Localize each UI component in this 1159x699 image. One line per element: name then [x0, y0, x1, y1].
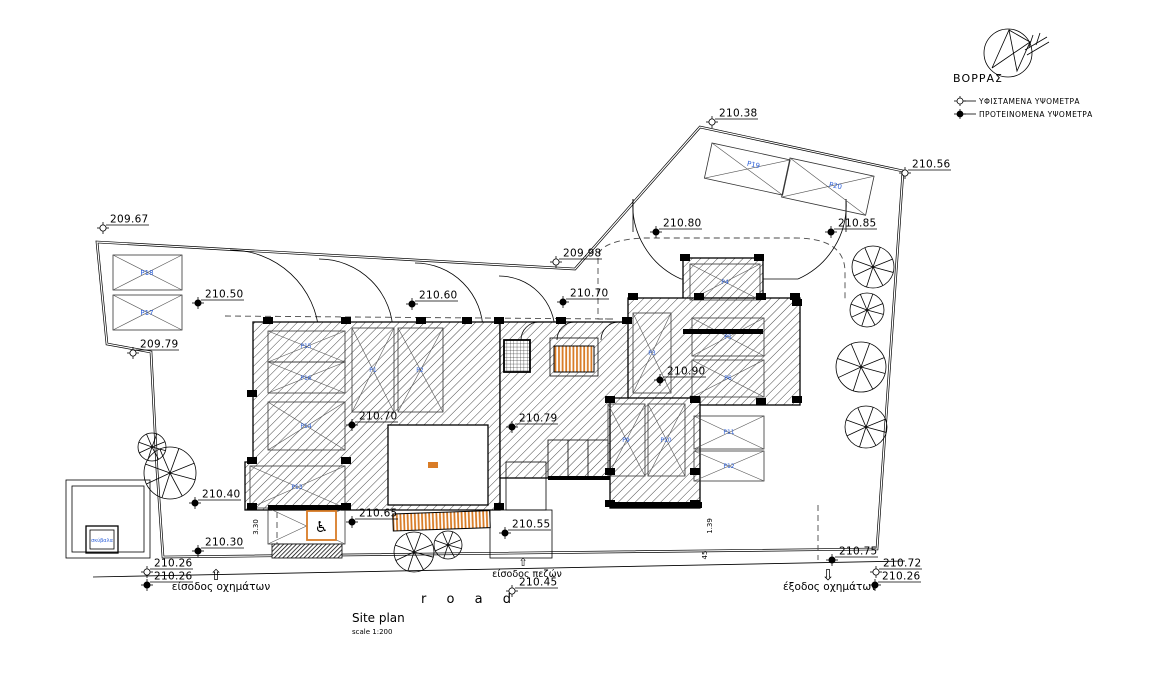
- column: [341, 457, 351, 464]
- parking-space-label: P17: [140, 309, 153, 317]
- column: [494, 317, 504, 324]
- tree-icon: [852, 246, 894, 288]
- dimension-label: 45: [701, 551, 709, 560]
- parking-space-label: P4: [721, 279, 729, 286]
- tree-icon: [845, 406, 887, 448]
- column: [756, 293, 766, 300]
- elevation-value: 210.60: [419, 290, 458, 302]
- elevation-marker: 210.85: [825, 218, 877, 239]
- tree-icon: [394, 532, 434, 572]
- elevation-marker: 210.40: [189, 489, 241, 510]
- proposed-elevation-icon: [829, 557, 835, 563]
- proposed-elevation-icon: [560, 299, 566, 305]
- existing-elevation-icon: [144, 569, 150, 575]
- elevation-value: 210.85: [838, 218, 877, 230]
- elevation-marker: 209.67: [97, 214, 149, 235]
- parking-space-label: P14: [300, 423, 311, 430]
- elevation-marker: 210.56: [899, 159, 951, 180]
- legend-proposed-symbol: [954, 109, 976, 119]
- waste-box-label: σκύβαλα: [91, 537, 113, 544]
- compass: ΒΟΡΡΑΣ: [953, 29, 1049, 85]
- column: [756, 398, 766, 405]
- elevation-marker: 210.55: [499, 519, 551, 540]
- elevation-marker: 210.60: [406, 290, 458, 311]
- proposed-elevation-icon: [349, 422, 355, 428]
- vehicle-exit-label: έξοδος οχημάτων: [783, 581, 877, 593]
- proposed-elevation-icon: [653, 229, 659, 235]
- existing-elevation-icon: [100, 225, 106, 231]
- parking-space-label: P11: [723, 429, 734, 436]
- elevation-marker: 209.98: [550, 248, 602, 269]
- elevation-value: 210.56: [912, 159, 951, 171]
- column: [790, 293, 800, 300]
- compass-label: ΒΟΡΡΑΣ: [953, 72, 1003, 85]
- courtyard-grid: [388, 425, 488, 505]
- tree-icon: [144, 447, 196, 499]
- proposed-elevation-icon: [349, 519, 355, 525]
- column: [628, 293, 638, 300]
- elevation-value: 210.26: [882, 571, 921, 583]
- existing-elevation-icon: [709, 119, 715, 125]
- proposed-elevation-icon: [192, 500, 198, 506]
- proposed-elevation-icon: [409, 301, 415, 307]
- parking-space-label: P18: [140, 269, 153, 277]
- elevation-value: 210.70: [359, 411, 398, 423]
- tree-icon: [138, 433, 166, 461]
- column: [792, 396, 802, 403]
- parking-space-label: P13: [291, 484, 302, 491]
- elevation-value: 210.79: [519, 413, 558, 425]
- proposed-elevation-icon: [195, 548, 201, 554]
- proposed-elevation-icon: [828, 229, 834, 235]
- existing-elevation-icon: [130, 350, 136, 356]
- column: [462, 317, 472, 324]
- legend-existing-label: ΥΦΙΣΤΑΜΕΝΑ ΥΨΟΜΕΤΡΑ: [978, 97, 1080, 106]
- existing-elevation-icon: [553, 259, 559, 265]
- dimension-label: 1.39: [706, 518, 714, 534]
- wheelchair-icon: ♿: [315, 518, 328, 536]
- parking-space-label: P9: [622, 437, 630, 444]
- elevation-value: 210.72: [883, 558, 922, 570]
- parking-space-label: P15: [300, 343, 311, 350]
- elevation-value: 210.26: [154, 571, 193, 583]
- elevation-value: 210.80: [663, 218, 702, 230]
- entrance-ramp: [393, 511, 491, 531]
- parking-space-label: P6: [724, 375, 732, 382]
- dimension-label: 3.30: [252, 519, 260, 535]
- elevation-value: 210.75: [839, 546, 878, 558]
- parking-space-label: P5: [724, 334, 732, 341]
- tree-icon: [850, 293, 884, 327]
- vehicle-entrance-label: είσοδος οχημάτων: [172, 581, 271, 593]
- elevation-value: 210.30: [205, 537, 244, 549]
- parking-space-label: P12: [723, 463, 734, 470]
- column: [605, 468, 615, 475]
- legend: ΥΦΙΣΤΑΜΕΝΑ ΥΨΟΜΕΤΡΑ ΠΡΟΤΕΙΝΟΜΕΝΑ ΥΨΟΜΕΤΡ…: [954, 96, 1093, 119]
- elevation-value: 210.26: [154, 558, 193, 570]
- pedestrian-entrance-arrow-icon: ⇧: [518, 556, 527, 569]
- elevation-marker: 210.50: [192, 289, 244, 310]
- parking-space-label: P10: [660, 437, 671, 444]
- elevation-marker: 210.30: [192, 537, 244, 558]
- parking-bays-north: [704, 143, 874, 215]
- column: [341, 317, 351, 324]
- column: [690, 396, 700, 403]
- column: [247, 457, 257, 464]
- parking-bays-west: [113, 255, 182, 330]
- elevation-value: 210.45: [519, 577, 558, 589]
- elevation-value: 209.79: [140, 339, 179, 351]
- site-plan-drawing: σκύβαλα: [0, 0, 1159, 699]
- existing-elevation-icon: [873, 569, 879, 575]
- column: [680, 254, 690, 261]
- column: [494, 503, 504, 510]
- column: [792, 299, 802, 306]
- column: [416, 317, 426, 324]
- parking-space-label: P3: [648, 350, 656, 357]
- elevation-value: 210.40: [202, 489, 241, 501]
- existing-elevation-icon: [902, 170, 908, 176]
- wall-segment: [610, 502, 702, 508]
- page-title: Site plan: [352, 611, 405, 625]
- column: [556, 317, 566, 324]
- column: [690, 468, 700, 475]
- waste-enclosure: σκύβαλα: [66, 480, 150, 558]
- column: [247, 503, 257, 510]
- accessible-parking-bay: ♿: [268, 508, 345, 558]
- proposed-elevation-icon: [144, 582, 150, 588]
- parking-space-label: P20: [828, 181, 843, 192]
- road-label: r o a d: [421, 592, 519, 607]
- elevation-value: 209.67: [110, 214, 149, 226]
- elevation-value: 210.50: [205, 289, 244, 301]
- wall-segment: [548, 476, 610, 480]
- column: [605, 396, 615, 403]
- legend-proposed-label: ΠΡΟΤΕΙΝΟΜΕΝΑ ΥΨΟΜΕΤΡΑ: [979, 110, 1093, 119]
- legend-existing-symbol: [954, 96, 976, 106]
- elevation-marker: 210.38: [706, 108, 758, 129]
- tree-icon: [836, 342, 886, 392]
- elevation-value: 210.55: [512, 519, 551, 531]
- elevation-value: 210.90: [667, 366, 706, 378]
- elevation-value: 210.70: [570, 288, 609, 300]
- proposed-elevation-icon: [872, 582, 878, 588]
- column: [247, 390, 257, 397]
- elevation-value: 210.65: [359, 508, 398, 520]
- wall-segment: [683, 329, 763, 334]
- column: [754, 254, 764, 261]
- elevation-marker: 210.70: [557, 288, 609, 309]
- elevation-marker: 210.80: [650, 218, 702, 239]
- wall-segment: [268, 505, 348, 510]
- title-block: r o a d Site plan scale 1:200: [352, 592, 519, 636]
- proposed-elevation-icon: [509, 424, 515, 430]
- proposed-elevation-icon: [657, 377, 663, 383]
- parking-space-label: P16: [300, 375, 311, 382]
- scale-label: scale 1:200: [352, 628, 392, 636]
- column: [694, 293, 704, 300]
- column: [622, 317, 632, 324]
- column: [263, 317, 273, 324]
- parking-space-label: P2: [416, 367, 424, 374]
- elevation-value: 209.98: [563, 248, 602, 260]
- proposed-elevation-icon: [195, 300, 201, 306]
- parking-space-label: P1: [369, 367, 377, 374]
- proposed-elevation-icon: [502, 530, 508, 536]
- elevation-value: 210.38: [719, 108, 758, 120]
